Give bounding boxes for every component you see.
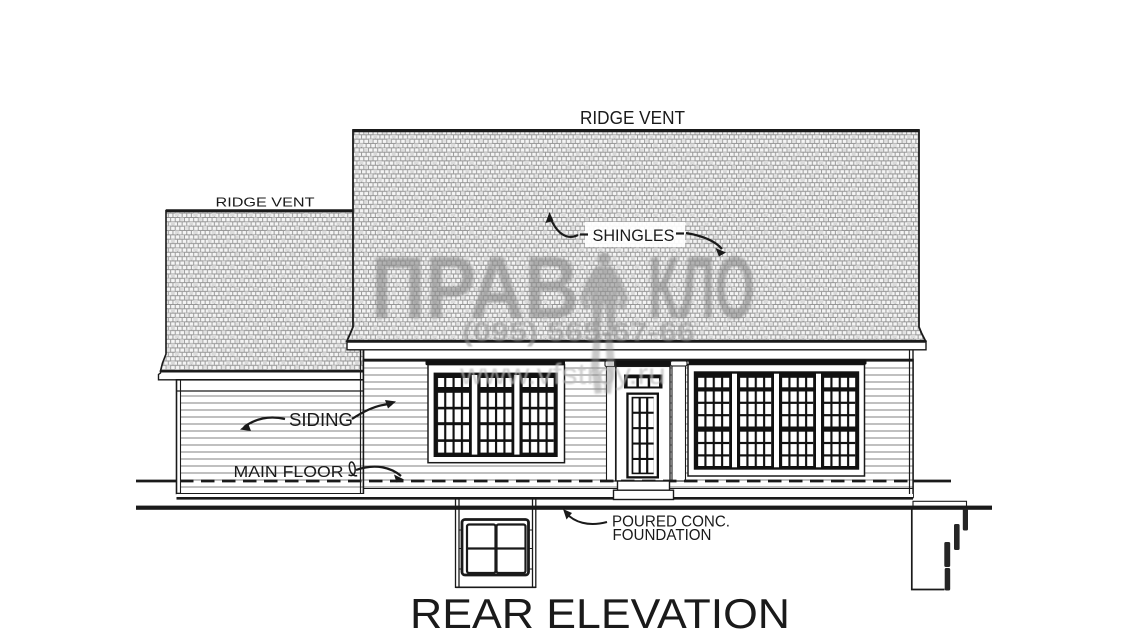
svg-text:REAR ELEVATION: REAR ELEVATION	[410, 590, 790, 633]
svg-text:SHINGLES: SHINGLES	[593, 226, 675, 245]
svg-text:www.vfstroy.ru: www.vfstroy.ru	[459, 358, 666, 391]
svg-text:MAIN FLOOR: MAIN FLOOR	[234, 464, 344, 481]
svg-text:(095) 565-67-66: (095) 565-67-66	[462, 317, 695, 347]
svg-text:RIDGE VENT: RIDGE VENT	[216, 196, 315, 210]
svg-text:FOUNDATION: FOUNDATION	[613, 527, 712, 544]
svg-text:SIDING: SIDING	[289, 410, 353, 430]
svg-text:RIDGE VENT: RIDGE VENT	[580, 108, 685, 128]
